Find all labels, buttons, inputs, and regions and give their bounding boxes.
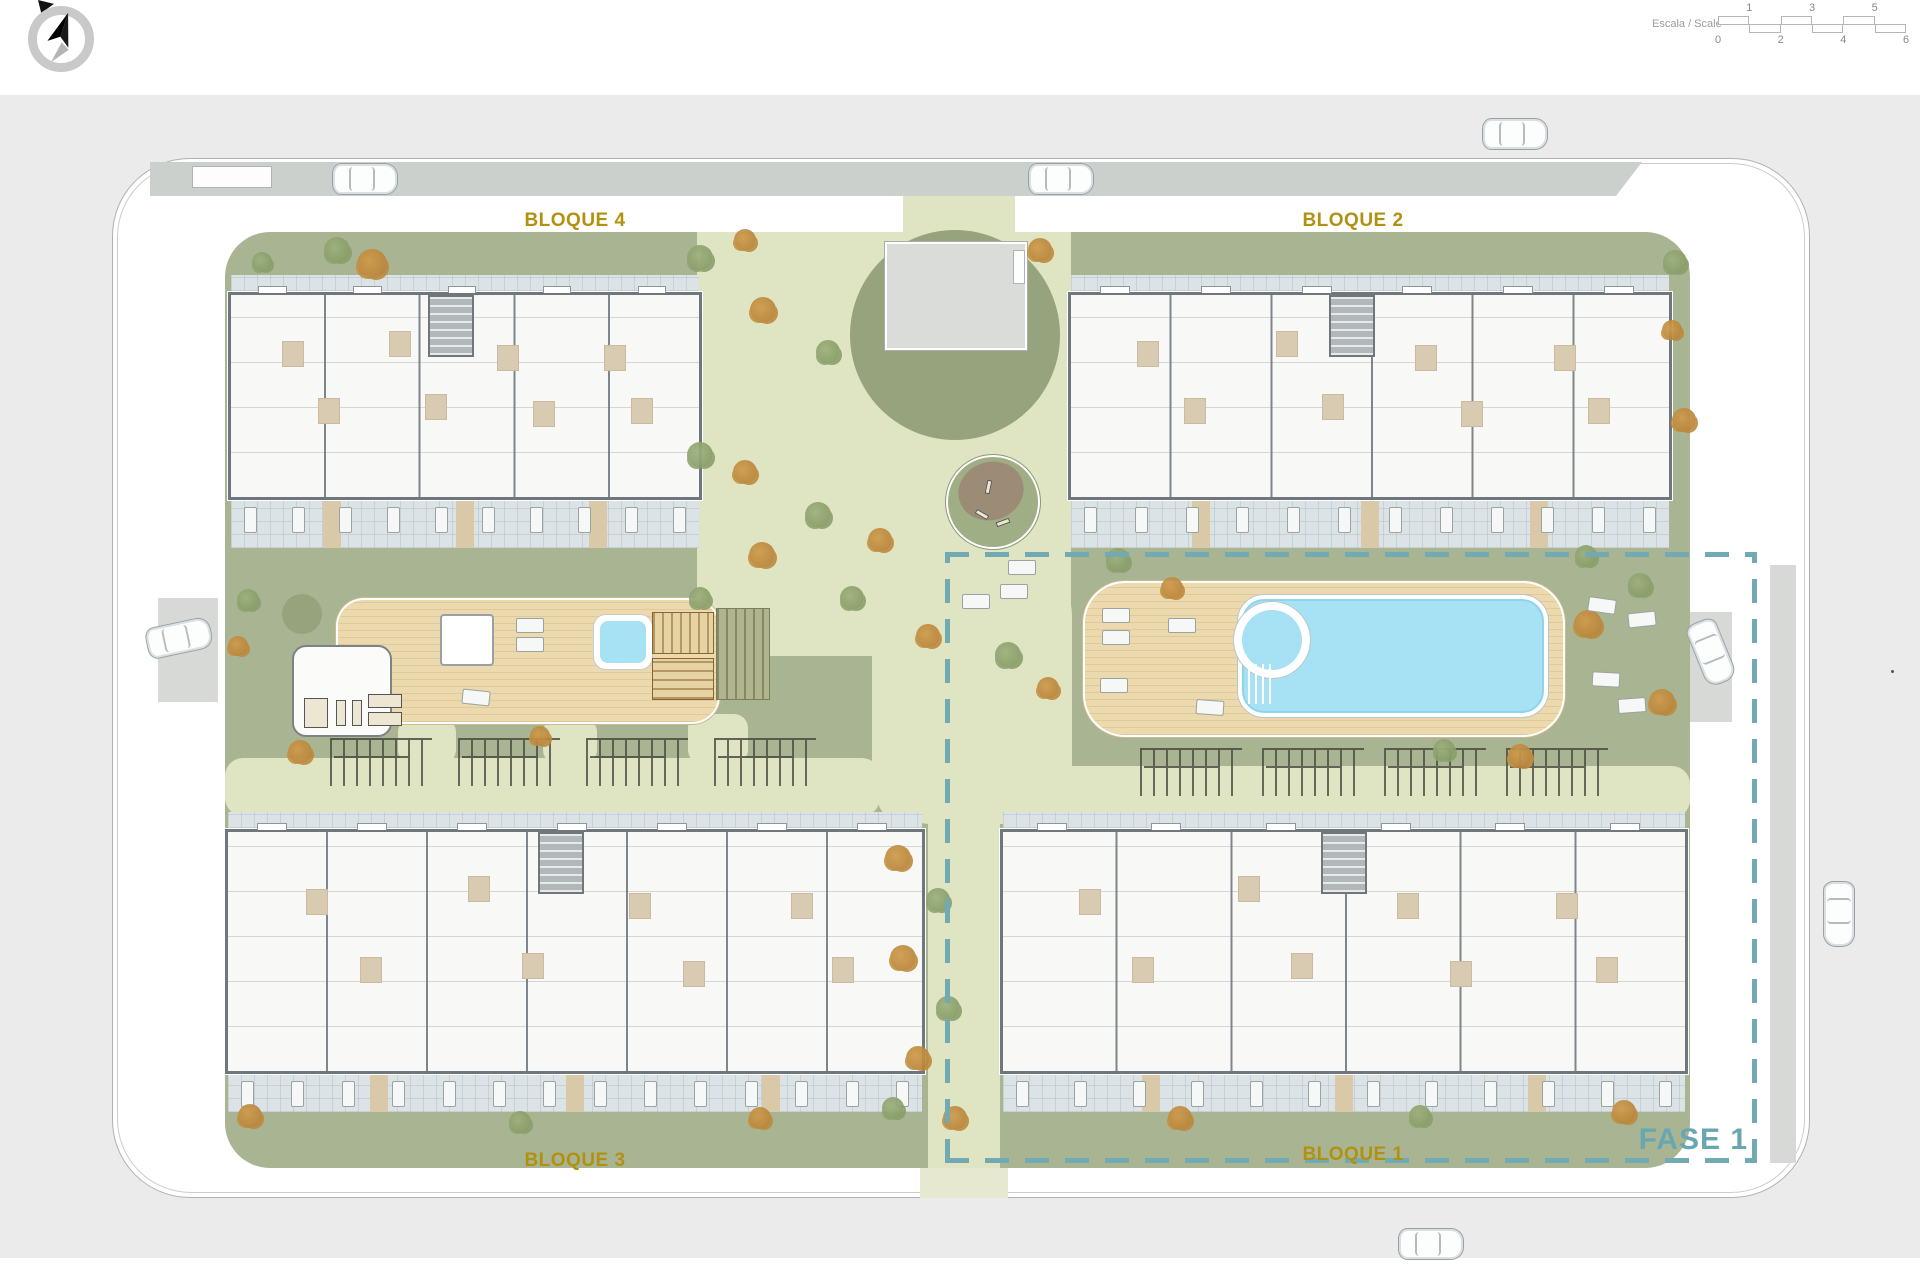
scale-label: Escala / Scale	[1652, 18, 1722, 30]
terrace-walk	[370, 1074, 388, 1112]
lounger-icon	[1592, 507, 1605, 533]
balcony-notch	[657, 823, 687, 830]
car-icon	[1823, 881, 1855, 947]
stair-core-bloque-3	[538, 832, 584, 894]
scale-segment	[1812, 24, 1843, 33]
garden-trellis-icon	[714, 738, 816, 786]
garden-trellis-icon	[586, 738, 688, 786]
fase1-dashed-boundary	[945, 552, 1757, 557]
bathroom-patch	[1238, 876, 1260, 902]
tree-icon	[1612, 1100, 1636, 1124]
tree-icon	[689, 587, 711, 609]
tree-icon	[1649, 689, 1675, 715]
lounger-icon	[1102, 608, 1130, 623]
tree-icon	[890, 945, 916, 971]
car-icon	[1028, 163, 1094, 195]
bathroom-patch	[282, 341, 304, 367]
tree-icon	[882, 1097, 904, 1119]
balcony-notch	[353, 286, 381, 293]
lounger-icon	[342, 1081, 355, 1107]
scale-segment	[1749, 24, 1780, 33]
bathroom-patch	[1596, 957, 1618, 983]
label-bloque-4: BLOQUE 4	[524, 210, 625, 232]
compass-icon	[28, 6, 94, 72]
bathroom-patch	[360, 957, 382, 983]
scale-number: 6	[1903, 34, 1909, 46]
lounger-icon	[745, 1081, 758, 1107]
terrace-walk	[566, 1074, 584, 1112]
lounger-icon	[1000, 584, 1028, 599]
wood-deck-panel	[716, 608, 770, 700]
bathroom-patch	[497, 345, 519, 371]
tree-icon	[1433, 739, 1455, 761]
tree-icon	[1672, 408, 1696, 432]
lounger-icon	[694, 1081, 707, 1107]
scale-segment	[1718, 16, 1749, 25]
balcony-notch	[1604, 286, 1634, 293]
stair-core-bloque-1	[1321, 832, 1367, 894]
lounger-icon	[1618, 697, 1647, 714]
sidewalk-right	[1770, 565, 1796, 1163]
bathroom-patch	[306, 889, 328, 915]
car-icon	[1398, 1228, 1464, 1260]
lounger-icon	[1308, 1081, 1321, 1107]
tree-icon	[1662, 320, 1682, 340]
scale-bar: Escala / Scale 1350246	[1652, 8, 1908, 44]
bathroom-patch	[1184, 398, 1206, 424]
balcony-notch	[1201, 286, 1231, 293]
tree-icon	[885, 845, 911, 871]
lounger-icon	[1074, 1081, 1087, 1107]
balcony-notch	[357, 823, 387, 830]
lounger-icon	[1338, 507, 1351, 533]
tree-icon	[1409, 1105, 1431, 1127]
tree-icon	[749, 542, 775, 568]
lounger-icon	[530, 507, 543, 533]
site-plan-page: BLOQUE 4 BLOQUE 2 BLOQUE 3 BLOQUE 1 FASE…	[0, 0, 1920, 1280]
tree-icon	[840, 586, 864, 610]
balcony-notch	[1151, 823, 1181, 830]
scale-number: 1	[1746, 2, 1752, 14]
balcony-notch	[557, 823, 587, 830]
header-band: Escala / Scale 1350246	[0, 0, 1920, 95]
lounger-icon	[1627, 611, 1656, 629]
tree-icon	[733, 460, 757, 484]
lounger-icon	[1186, 507, 1199, 533]
bathroom-patch	[318, 398, 340, 424]
gym-equipment	[352, 700, 362, 726]
tree-icon	[1574, 610, 1602, 638]
label-fase-1: FASE 1	[1639, 1123, 1748, 1157]
lounger-icon	[962, 594, 990, 609]
gym-equipment	[304, 698, 328, 728]
lounger-icon	[461, 689, 490, 707]
car-icon	[332, 163, 398, 195]
utility-door	[1013, 250, 1025, 284]
entrance-tile-bloque-2	[1071, 275, 1669, 291]
balcony-notch	[1100, 286, 1130, 293]
tree-icon	[916, 624, 940, 648]
scale-number: 5	[1872, 2, 1878, 14]
lounger-icon	[493, 1081, 506, 1107]
tree-icon	[995, 642, 1021, 668]
bathroom-patch	[1588, 398, 1610, 424]
balcony-notch	[1381, 823, 1411, 830]
balcony-notch	[1037, 823, 1067, 830]
lounger-icon	[516, 637, 544, 652]
lounger-icon	[1135, 507, 1148, 533]
lounger-icon	[443, 1081, 456, 1107]
bathroom-patch	[629, 893, 651, 919]
car-glass	[161, 624, 191, 653]
lounger-icon	[1008, 560, 1036, 575]
tree-icon	[238, 1104, 262, 1128]
bathroom-patch	[631, 398, 653, 424]
terrace-walk	[589, 500, 607, 548]
tree-icon	[324, 237, 350, 263]
lounger-icon	[244, 507, 257, 533]
label-bloque-2: BLOQUE 2	[1302, 210, 1403, 232]
balcony-notch	[1266, 823, 1296, 830]
bathroom-patch	[468, 876, 490, 902]
kids-pool	[1242, 610, 1302, 670]
lounger-icon	[1100, 678, 1128, 693]
scale-segment	[1781, 16, 1812, 25]
tree-icon	[687, 442, 713, 468]
garden-trellis-icon	[330, 738, 432, 786]
bathroom-patch	[1415, 345, 1437, 371]
bathroom-patch	[1291, 953, 1313, 979]
lounger-icon	[1643, 507, 1656, 533]
balcony-notch	[1402, 286, 1432, 293]
lounger-icon	[516, 618, 544, 633]
lounger-icon	[339, 507, 352, 533]
bathroom-patch	[1556, 893, 1578, 919]
bathroom-patch	[522, 953, 544, 979]
garden-trellis-icon	[1140, 748, 1242, 796]
bathroom-patch	[1079, 889, 1101, 915]
lounger-icon	[1541, 507, 1554, 533]
lounger-icon	[594, 1081, 607, 1107]
scale-segment	[1875, 24, 1906, 33]
bathroom-patch	[425, 394, 447, 420]
lounger-icon	[291, 1081, 304, 1107]
tree-icon	[509, 1111, 531, 1133]
bathroom-patch	[791, 893, 813, 919]
scale-number: 0	[1715, 34, 1721, 46]
gym-equipment	[368, 712, 402, 726]
lounger-icon	[1016, 1081, 1029, 1107]
tree-icon	[687, 245, 713, 271]
lounger-icon	[578, 507, 591, 533]
lounger-icon	[1592, 671, 1621, 687]
balcony-notch	[1503, 286, 1533, 293]
lounger-icon	[673, 507, 686, 533]
spa-pool	[600, 621, 646, 663]
bathroom-patch	[1132, 957, 1154, 983]
bathroom-patch	[1322, 394, 1344, 420]
balcony-notch	[757, 823, 787, 830]
lounger-icon	[644, 1081, 657, 1107]
lounger-icon	[1236, 507, 1249, 533]
stair-core-bloque-4	[428, 295, 474, 357]
bathroom-patch	[1137, 341, 1159, 367]
lounger-icon	[1287, 507, 1300, 533]
garden-trellis-icon	[1262, 748, 1364, 796]
garden-trellis-icon	[458, 738, 560, 786]
wood-deck-panel	[652, 658, 714, 700]
tree-icon	[530, 726, 550, 746]
tree-icon	[228, 636, 248, 656]
utility-building	[885, 242, 1027, 350]
lounger-icon	[1196, 699, 1225, 716]
lawn-circle	[282, 594, 322, 634]
pool-steps	[1248, 664, 1276, 704]
bathroom-patch	[533, 401, 555, 427]
lounger-icon	[482, 507, 495, 533]
bathroom-patch	[604, 345, 626, 371]
terrace-walk	[762, 1074, 780, 1112]
lounger-icon	[1659, 1081, 1672, 1107]
lounger-icon	[392, 1081, 405, 1107]
car-glass	[1694, 633, 1726, 666]
tree-icon	[1628, 573, 1652, 597]
fase1-dashed-boundary	[1752, 552, 1757, 1163]
tree-icon	[750, 297, 776, 323]
tree-icon	[868, 528, 892, 552]
bathroom-patch	[1397, 893, 1419, 919]
balcony-notch	[1302, 286, 1332, 293]
balcony-notch	[543, 286, 571, 293]
entrance-tile-bloque-1	[1003, 812, 1685, 828]
lounger-icon	[1491, 507, 1504, 533]
lounger-icon	[1601, 1081, 1614, 1107]
car-glass	[1045, 167, 1071, 191]
lounger-icon	[241, 1081, 254, 1107]
terrace-walk	[1335, 1074, 1353, 1112]
balcony-notch	[638, 286, 666, 293]
lounger-icon	[1133, 1081, 1146, 1107]
label-bloque-3: BLOQUE 3	[524, 1150, 625, 1172]
car-glass	[1499, 122, 1525, 146]
tree-icon	[288, 740, 312, 764]
balcony-notch	[1495, 823, 1525, 830]
lounger-icon	[1484, 1081, 1497, 1107]
lounger-icon	[1084, 507, 1097, 533]
bathroom-patch	[389, 331, 411, 357]
fase1-dashed-boundary	[945, 552, 950, 1163]
gym-equipment	[336, 700, 346, 726]
car-glass	[1827, 898, 1851, 924]
tree-icon	[252, 252, 272, 272]
terrace-walk	[1361, 500, 1379, 548]
lounger-icon	[435, 507, 448, 533]
terrace-walk	[456, 500, 474, 548]
bathroom-patch	[1461, 401, 1483, 427]
tree-icon	[1508, 744, 1532, 768]
bathroom-patch	[1276, 331, 1298, 357]
tree-icon	[1028, 238, 1052, 262]
tree-icon	[1168, 1106, 1192, 1130]
tree-icon	[1161, 577, 1183, 599]
lounger-icon	[292, 507, 305, 533]
car-glass	[1415, 1232, 1441, 1256]
lounger-icon	[1425, 1081, 1438, 1107]
tree-icon	[816, 340, 840, 364]
tree-icon	[906, 1046, 930, 1070]
scale-number: 4	[1840, 34, 1846, 46]
parking-bay	[192, 166, 272, 188]
gym-equipment	[368, 694, 402, 708]
tree-icon	[805, 502, 831, 528]
wood-deck-panel	[652, 612, 714, 654]
car-glass	[349, 167, 375, 191]
bathroom-patch	[683, 961, 705, 987]
site-plan-scene	[0, 0, 1920, 1280]
lounger-icon	[1542, 1081, 1555, 1107]
balcony-notch	[258, 286, 286, 293]
pergola	[440, 614, 494, 666]
lounger-icon	[1102, 630, 1130, 645]
tree-icon	[357, 249, 387, 279]
tree-icon	[734, 229, 756, 251]
scale-number: 2	[1778, 34, 1784, 46]
balcony-notch	[448, 286, 476, 293]
map-dot	[1891, 670, 1894, 673]
scale-segment	[1843, 16, 1874, 25]
balcony-notch	[457, 823, 487, 830]
balcony-notch	[1610, 823, 1640, 830]
south-exit-path	[920, 1168, 1008, 1198]
tree-icon	[749, 1107, 771, 1129]
lounger-icon	[795, 1081, 808, 1107]
lounger-icon	[625, 507, 638, 533]
bathroom-patch	[1554, 345, 1576, 371]
car-icon	[1482, 118, 1548, 150]
lounger-icon	[1250, 1081, 1263, 1107]
lounger-icon	[543, 1081, 556, 1107]
bathroom-patch	[832, 957, 854, 983]
lounger-icon	[1191, 1081, 1204, 1107]
lounger-icon	[1389, 507, 1402, 533]
scale-number: 3	[1809, 2, 1815, 14]
balcony-notch	[857, 823, 887, 830]
lounger-icon	[1367, 1081, 1380, 1107]
lounger-icon	[846, 1081, 859, 1107]
balcony-notch	[257, 823, 287, 830]
tree-icon	[1037, 677, 1059, 699]
tree-icon	[1663, 250, 1687, 274]
tree-icon	[237, 589, 259, 611]
lounger-icon	[1168, 618, 1196, 633]
stair-core-bloque-2	[1329, 295, 1375, 357]
lounger-icon	[1440, 507, 1453, 533]
scale-bar-graphic: 1350246	[1718, 10, 1906, 40]
lounger-icon	[387, 507, 400, 533]
bathroom-patch	[1450, 961, 1472, 987]
label-bloque-1: BLOQUE 1	[1302, 1144, 1403, 1166]
